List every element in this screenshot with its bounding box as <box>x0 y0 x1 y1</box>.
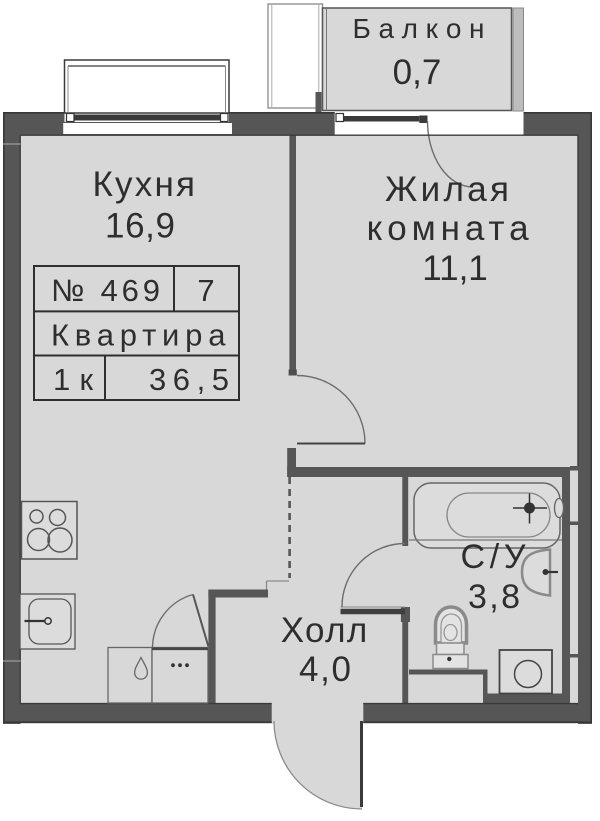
svg-text:Кухня: Кухня <box>92 165 195 204</box>
svg-text:№ 469: № 469 <box>51 273 160 308</box>
svg-text:11,1: 11,1 <box>422 249 488 288</box>
svg-text:4,0: 4,0 <box>299 650 351 689</box>
svg-text:Жилая: Жилая <box>385 170 509 209</box>
svg-text:7: 7 <box>197 273 214 308</box>
svg-text:С/У: С/У <box>461 538 526 576</box>
svg-text:16,9: 16,9 <box>105 207 175 246</box>
svg-text:0,7: 0,7 <box>393 53 442 92</box>
svg-text:36,5: 36,5 <box>149 362 229 397</box>
svg-text:3,8: 3,8 <box>468 578 520 616</box>
